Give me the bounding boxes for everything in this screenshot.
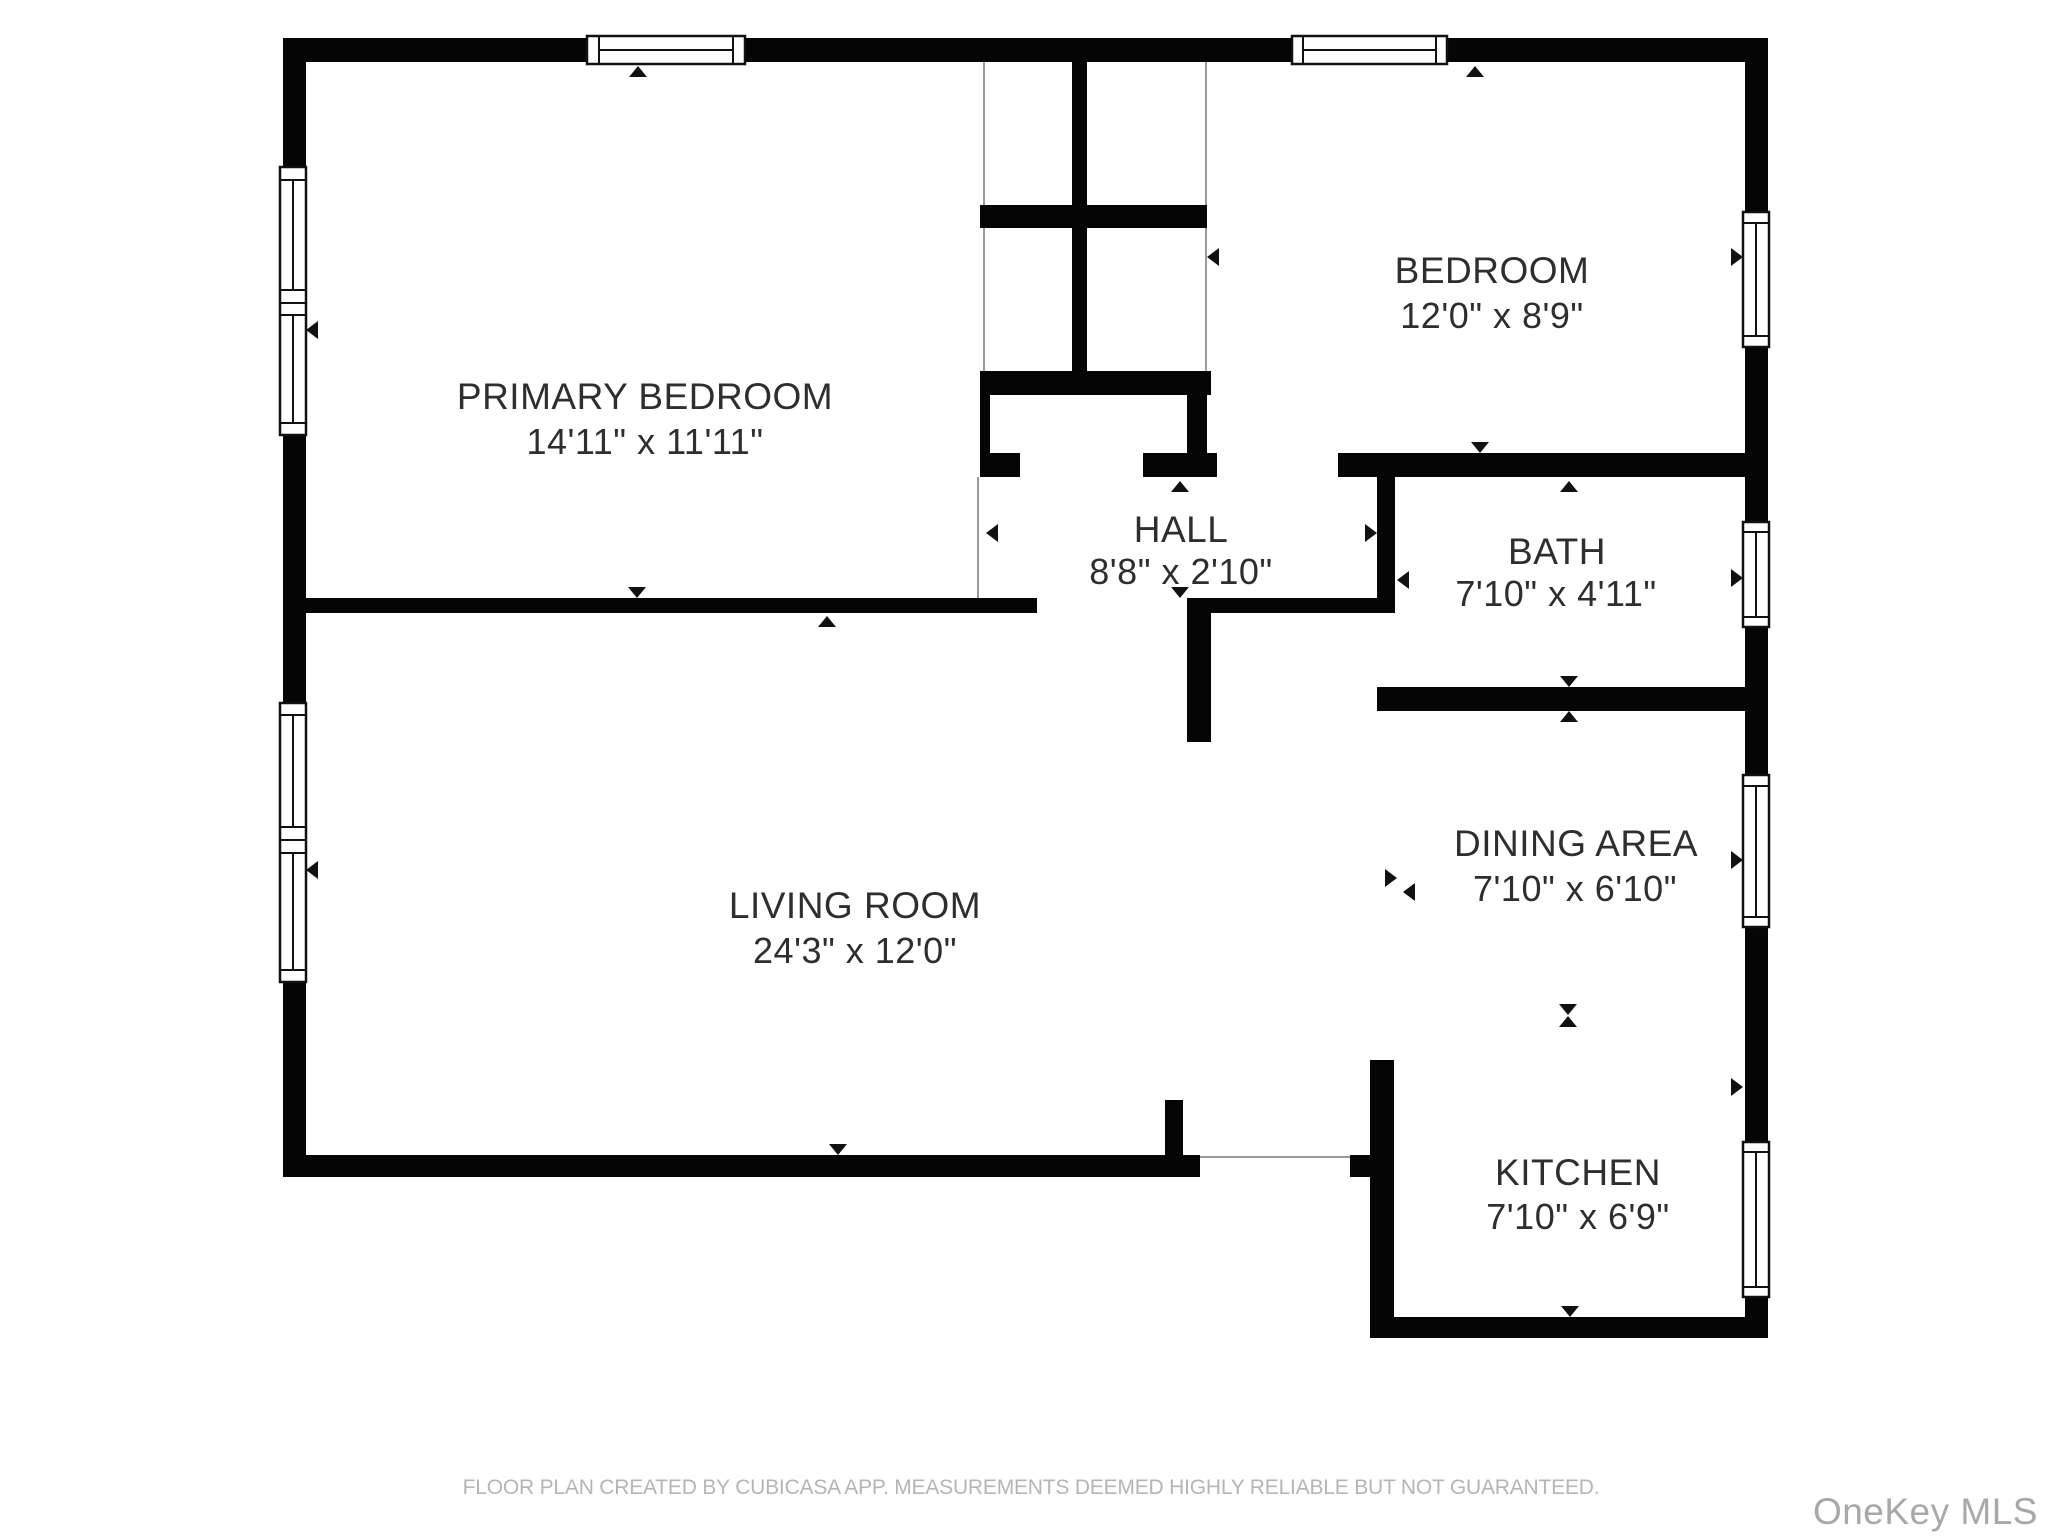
window-icon bbox=[1292, 36, 1447, 64]
room-label-living-room: LIVING ROOM bbox=[729, 885, 981, 926]
wall-stub-below-hall bbox=[1187, 598, 1211, 742]
marker-down-icon bbox=[628, 587, 646, 598]
wall-hall-top-left-block bbox=[980, 453, 1020, 477]
marker-down-icon bbox=[1560, 676, 1578, 687]
footer-disclaimer: FLOOR PLAN CREATED BY CUBICASA APP. MEAS… bbox=[463, 1476, 1600, 1499]
marker-up-icon bbox=[629, 66, 647, 77]
marker-left-icon bbox=[1403, 883, 1415, 901]
room-label-primary-bedroom: PRIMARY BEDROOM bbox=[457, 376, 833, 417]
marker-left-icon bbox=[1207, 248, 1219, 266]
floor-plan-drawing: PRIMARY BEDROOM 14'11" x 11'11" BEDROOM … bbox=[0, 0, 2048, 1536]
wall-closet-mid bbox=[980, 205, 1207, 228]
window-icon bbox=[1743, 522, 1769, 627]
room-dims-kitchen: 7'10" x 6'9" bbox=[1486, 1196, 1669, 1237]
marker-down-icon bbox=[829, 1144, 847, 1155]
wall-top bbox=[283, 38, 1768, 62]
wall-closet-lower bbox=[980, 371, 1211, 395]
wall-bath-left bbox=[1377, 453, 1395, 598]
marker-up-icon bbox=[1560, 711, 1578, 722]
marker-right-icon bbox=[1731, 1078, 1743, 1096]
marker-up-icon bbox=[1466, 66, 1484, 77]
wall-stub-kitchen-entry bbox=[1165, 1100, 1183, 1157]
marker-right-icon bbox=[1731, 569, 1743, 587]
room-dims-living-room: 24'3" x 12'0" bbox=[753, 930, 957, 971]
window-icon bbox=[1743, 212, 1769, 347]
marker-right-icon bbox=[1731, 248, 1743, 266]
room-label-bedroom: BEDROOM bbox=[1395, 250, 1590, 291]
window-icon bbox=[1743, 775, 1769, 927]
wall-bedroom-bath-top bbox=[1338, 453, 1745, 477]
window-icon bbox=[1743, 1142, 1769, 1297]
floor-plan-page: PRIMARY BEDROOM 14'11" x 11'11" BEDROOM … bbox=[0, 0, 2048, 1536]
room-dims-hall: 8'8" x 2'10" bbox=[1089, 551, 1272, 592]
wall-hall-bottom-right bbox=[1187, 598, 1395, 613]
marker-up-icon bbox=[818, 616, 836, 627]
room-label-kitchen: KITCHEN bbox=[1495, 1152, 1661, 1193]
marker-down-icon bbox=[1561, 1306, 1579, 1317]
marker-right-icon bbox=[1731, 851, 1743, 869]
marker-down-icon bbox=[1471, 442, 1489, 453]
wall-closet-right-side bbox=[1187, 371, 1207, 453]
wall-hall-top-center-block bbox=[1143, 453, 1217, 477]
marker-left-icon bbox=[306, 861, 318, 879]
wall-bath-bottom bbox=[1377, 687, 1745, 711]
wall-living-bottom bbox=[283, 1155, 1200, 1177]
marker-right-icon bbox=[1365, 524, 1377, 542]
marker-left-icon bbox=[306, 321, 318, 339]
walls bbox=[283, 38, 1768, 1338]
watermark: OneKey MLS bbox=[1813, 1491, 2038, 1532]
wall-dining-kitchen-left bbox=[1370, 1060, 1394, 1317]
marker-up-icon bbox=[1171, 481, 1189, 492]
room-dims-bedroom: 12'0" x 8'9" bbox=[1400, 295, 1583, 336]
wall-closet-left-side bbox=[980, 395, 990, 453]
marker-down-icon bbox=[1559, 1004, 1577, 1015]
marker-left-icon bbox=[986, 524, 998, 542]
room-label-bath: BATH bbox=[1508, 531, 1606, 572]
marker-up-icon bbox=[1559, 1016, 1577, 1027]
room-label-hall: HALL bbox=[1134, 509, 1229, 550]
wall-primary-living bbox=[290, 598, 1037, 613]
room-labels: PRIMARY BEDROOM 14'11" x 11'11" BEDROOM … bbox=[457, 250, 1698, 1237]
room-label-dining-area: DINING AREA bbox=[1454, 823, 1698, 864]
room-dims-bath: 7'10" x 4'11" bbox=[1455, 573, 1656, 614]
window-icon bbox=[587, 36, 745, 64]
marker-up-icon bbox=[1560, 481, 1578, 492]
window-icon bbox=[280, 703, 306, 982]
window-icon bbox=[280, 167, 306, 435]
room-dims-dining-area: 7'10" x 6'10" bbox=[1473, 868, 1677, 909]
room-dims-primary-bedroom: 14'11" x 11'11" bbox=[527, 421, 764, 462]
wall-kitchen-bottom bbox=[1370, 1317, 1768, 1338]
marker-right-icon bbox=[1385, 869, 1397, 887]
marker-left-icon bbox=[1397, 571, 1409, 589]
